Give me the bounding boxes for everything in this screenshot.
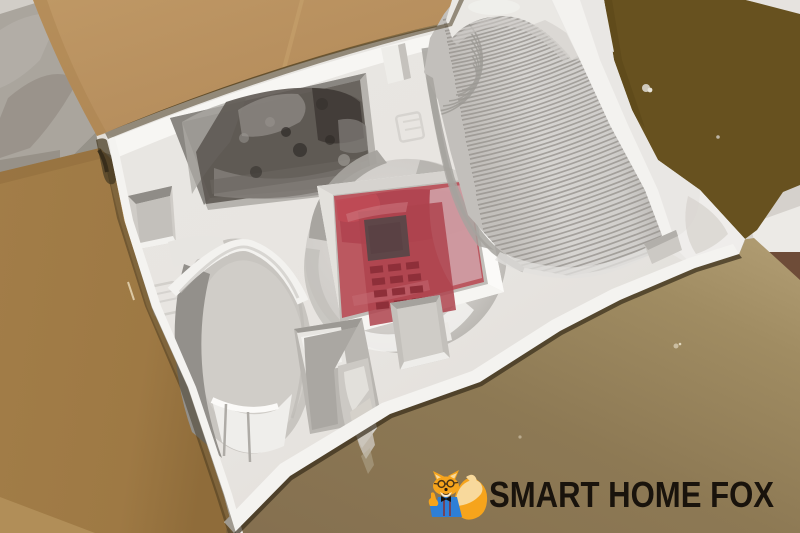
- svg-text:SMART HOME FOX: SMART HOME FOX: [489, 474, 775, 515]
